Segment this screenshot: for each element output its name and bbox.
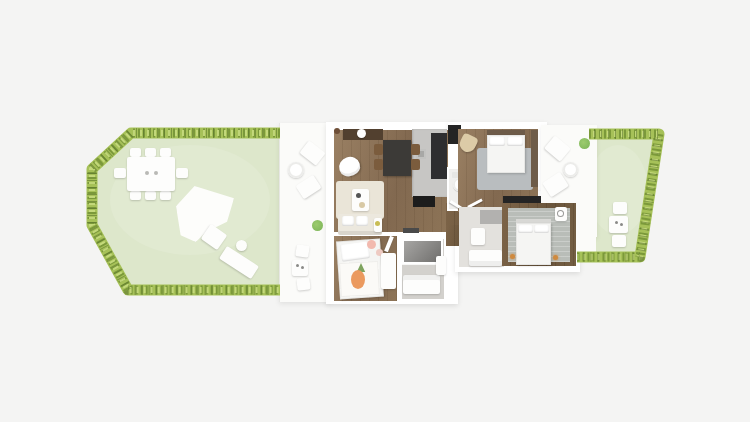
bath-vanity [403, 275, 440, 294]
kitchen-appliance-units [431, 133, 447, 179]
bistro-chair [296, 277, 310, 290]
garden-chair [145, 191, 156, 200]
round-side-table [288, 162, 304, 178]
garden-pouf [236, 240, 247, 251]
garden-table-decor [154, 171, 158, 175]
garden-table [609, 216, 628, 233]
decor-bowl [357, 129, 366, 138]
garden-chair [130, 191, 141, 200]
bistro-table-decor [301, 266, 304, 269]
pineapple-art [351, 270, 365, 289]
garden-table-decor [615, 221, 618, 224]
coffee-table-decor [359, 202, 365, 208]
threshold [403, 228, 419, 233]
dining-chair [411, 144, 420, 155]
garden-chair [160, 191, 171, 200]
round-side-table [563, 162, 578, 177]
garden-chair [613, 202, 627, 214]
dining-chair [374, 144, 383, 155]
garden-chair [160, 148, 171, 157]
bed-pillow [518, 225, 533, 233]
entry-doormat [480, 210, 502, 224]
garden-table-decor [620, 223, 623, 226]
bistro-table [292, 260, 308, 276]
decor-vase [334, 128, 340, 134]
wall-clock [557, 210, 564, 217]
sofa-cushion [356, 216, 368, 226]
garden-table-decor [145, 171, 149, 175]
garden-bistro-set [608, 202, 630, 248]
dining-table [383, 140, 411, 176]
bedside-lamp [510, 254, 515, 259]
bistro-table-decor [296, 264, 299, 267]
dining-chair [374, 159, 383, 170]
garden-dining-set [112, 146, 190, 202]
garden-chair [114, 168, 126, 178]
bedside-lamp [553, 255, 558, 260]
bed-pillow [534, 225, 549, 233]
side-table-decor [375, 221, 380, 226]
garden-table [127, 157, 175, 191]
garden-chair [130, 148, 141, 157]
bed-pillow [489, 137, 505, 146]
entry-cabinet [471, 228, 485, 245]
pouf-pink [367, 240, 376, 249]
floor-plan-scene [0, 0, 750, 422]
bath-cabinet [436, 256, 446, 275]
bedroom1-wardrobe [531, 130, 538, 187]
bistro-chair [295, 244, 310, 258]
dining-chair [411, 159, 420, 170]
garden-chair [145, 148, 156, 157]
garden-chair [612, 235, 626, 247]
potted-plant [312, 220, 323, 231]
bed-pillow [507, 137, 523, 146]
entry-wardrobe [469, 250, 502, 266]
garden-bench [219, 246, 259, 279]
potted-plant [579, 138, 590, 149]
sofa-cushion [342, 216, 354, 226]
garden-chair [176, 168, 188, 178]
kids-desk [381, 253, 396, 289]
kitchen-dark-mat [413, 196, 435, 207]
coffee-table-decor [356, 193, 361, 198]
